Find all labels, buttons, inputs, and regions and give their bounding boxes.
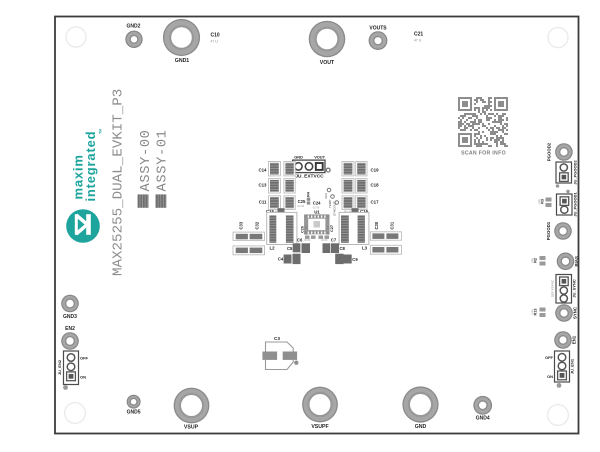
svg-text:JU_EN1: JU_EN1 bbox=[570, 358, 575, 374]
svg-text:ON: ON bbox=[80, 375, 86, 380]
svg-text:(0R): (0R) bbox=[538, 199, 542, 205]
svg-text:L3: L3 bbox=[362, 246, 368, 251]
svg-text:ON: ON bbox=[547, 374, 553, 379]
svg-text:VOUTS: VOUTS bbox=[369, 25, 387, 31]
svg-text:OFF: OFF bbox=[545, 355, 554, 360]
svg-text:C3: C3 bbox=[274, 336, 280, 341]
svg-text:C10: C10 bbox=[211, 33, 220, 39]
svg-text:47 U: 47 U bbox=[414, 39, 422, 43]
svg-text:JU_EN2: JU_EN2 bbox=[57, 359, 62, 375]
svg-text:(0R): (0R) bbox=[531, 309, 535, 315]
svg-text:C11: C11 bbox=[259, 200, 267, 205]
svg-text:PGOOD1: PGOOD1 bbox=[546, 221, 551, 240]
svg-text:OFF: OFF bbox=[80, 356, 89, 361]
svg-text:U1: U1 bbox=[314, 210, 320, 215]
svg-text:47 U: 47 U bbox=[211, 40, 219, 44]
svg-text:GND: GND bbox=[415, 424, 427, 430]
svg-text:GND4: GND4 bbox=[476, 416, 490, 422]
svg-text:VSUP: VSUP bbox=[184, 425, 199, 431]
svg-text:C14: C14 bbox=[258, 168, 267, 173]
svg-text:C8: C8 bbox=[340, 246, 346, 251]
svg-text:C5: C5 bbox=[287, 246, 293, 251]
svg-text:C4: C4 bbox=[278, 257, 284, 262]
svg-text:VOUT: VOUT bbox=[320, 60, 335, 66]
svg-text:EN1: EN1 bbox=[572, 335, 577, 344]
svg-text:JU_PGOOD1: JU_PGOOD1 bbox=[573, 191, 578, 216]
svg-text:BIAS: BIAS bbox=[574, 256, 579, 266]
svg-text:TM: TM bbox=[99, 129, 103, 134]
svg-text:(0R): (0R) bbox=[531, 258, 535, 264]
svg-text:C33: C33 bbox=[239, 221, 244, 229]
svg-text:EN2: EN2 bbox=[65, 326, 75, 332]
svg-text:C32: C32 bbox=[255, 221, 260, 229]
svg-text:GND1: GND1 bbox=[175, 58, 190, 64]
svg-text:C21: C21 bbox=[414, 32, 423, 38]
svg-text:C18: C18 bbox=[371, 183, 380, 188]
svg-text:VOUT: VOUT bbox=[314, 155, 325, 160]
svg-text:C24: C24 bbox=[313, 201, 321, 206]
svg-text:C7: C7 bbox=[331, 238, 337, 243]
svg-text:DEF FSYNC: DEF FSYNC bbox=[551, 279, 555, 297]
svg-text:02 06: 02 06 bbox=[313, 206, 320, 210]
svg-text:02 06: 02 06 bbox=[298, 204, 305, 208]
svg-text:C31: C31 bbox=[389, 221, 394, 229]
svg-text:C6: C6 bbox=[297, 238, 303, 243]
svg-text:C19: C19 bbox=[371, 168, 380, 173]
svg-text:MAX25255_DUAL_EVKIT_P3: MAX25255_DUAL_EVKIT_P3 bbox=[110, 89, 126, 276]
svg-text:PGOOD2: PGOOD2 bbox=[547, 142, 552, 161]
svg-text:ASSY-01: ASSY-01 bbox=[156, 129, 171, 191]
svg-text:C13: C13 bbox=[258, 183, 267, 188]
svg-text:C25: C25 bbox=[298, 199, 306, 204]
svg-text:C9: C9 bbox=[352, 257, 358, 262]
svg-text:integrated: integrated bbox=[83, 131, 98, 202]
svg-text:GND: GND bbox=[294, 155, 303, 160]
svg-text:C30: C30 bbox=[374, 221, 379, 229]
svg-text:GND5: GND5 bbox=[127, 410, 141, 416]
svg-text:C27: C27 bbox=[330, 225, 334, 232]
svg-text:SYNCOUT: SYNCOUT bbox=[333, 201, 337, 216]
svg-text:GND2: GND2 bbox=[127, 24, 141, 30]
svg-text:JU_EXTVCC: JU_EXTVCC bbox=[295, 174, 324, 180]
svg-text:ASSY-00: ASSY-00 bbox=[139, 129, 154, 191]
svg-text:GND3: GND3 bbox=[63, 314, 77, 320]
svg-text:VSUPF: VSUPF bbox=[311, 424, 328, 430]
svg-text:TEMP: TEMP bbox=[328, 200, 332, 208]
svg-text:JU_SYNC: JU_SYNC bbox=[572, 279, 577, 298]
svg-text:L2: L2 bbox=[270, 246, 276, 251]
svg-text:SYNC: SYNC bbox=[573, 307, 578, 319]
svg-text:C17: C17 bbox=[371, 200, 380, 205]
svg-text:C26: C26 bbox=[301, 226, 305, 233]
svg-text:SCAN FOR INFO: SCAN FOR INFO bbox=[461, 151, 506, 157]
svg-text:JU_PGOOD2: JU_PGOOD2 bbox=[573, 159, 578, 184]
svg-text:VCA: VCA bbox=[324, 193, 328, 199]
